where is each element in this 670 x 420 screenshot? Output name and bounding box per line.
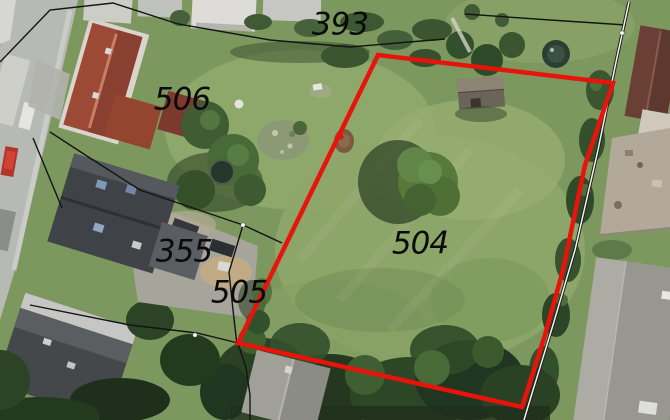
survey-marker-2 xyxy=(620,31,624,35)
parcel-label-355: 355 xyxy=(156,237,212,268)
aerial-map[interactable]: 393 506 355 505 504 xyxy=(0,0,670,420)
parcel-boundary-line-4 xyxy=(243,225,282,243)
parcel-label-506: 506 xyxy=(154,85,210,116)
parcel-boundary-line-7 xyxy=(238,343,250,420)
parcel-label-505: 505 xyxy=(211,278,267,309)
parcel-boundary-line-1 xyxy=(465,14,626,25)
parcel-boundary-line-6 xyxy=(30,305,238,343)
parcel-overlay xyxy=(0,0,670,420)
survey-marker-1 xyxy=(193,333,197,337)
parcel-label-393: 393 xyxy=(312,10,368,41)
survey-marker-0 xyxy=(241,223,245,227)
parcel-boundary-line-2 xyxy=(33,138,62,208)
parcel-label-504: 504 xyxy=(392,229,448,260)
parcel-boundary-line-3 xyxy=(50,132,243,225)
